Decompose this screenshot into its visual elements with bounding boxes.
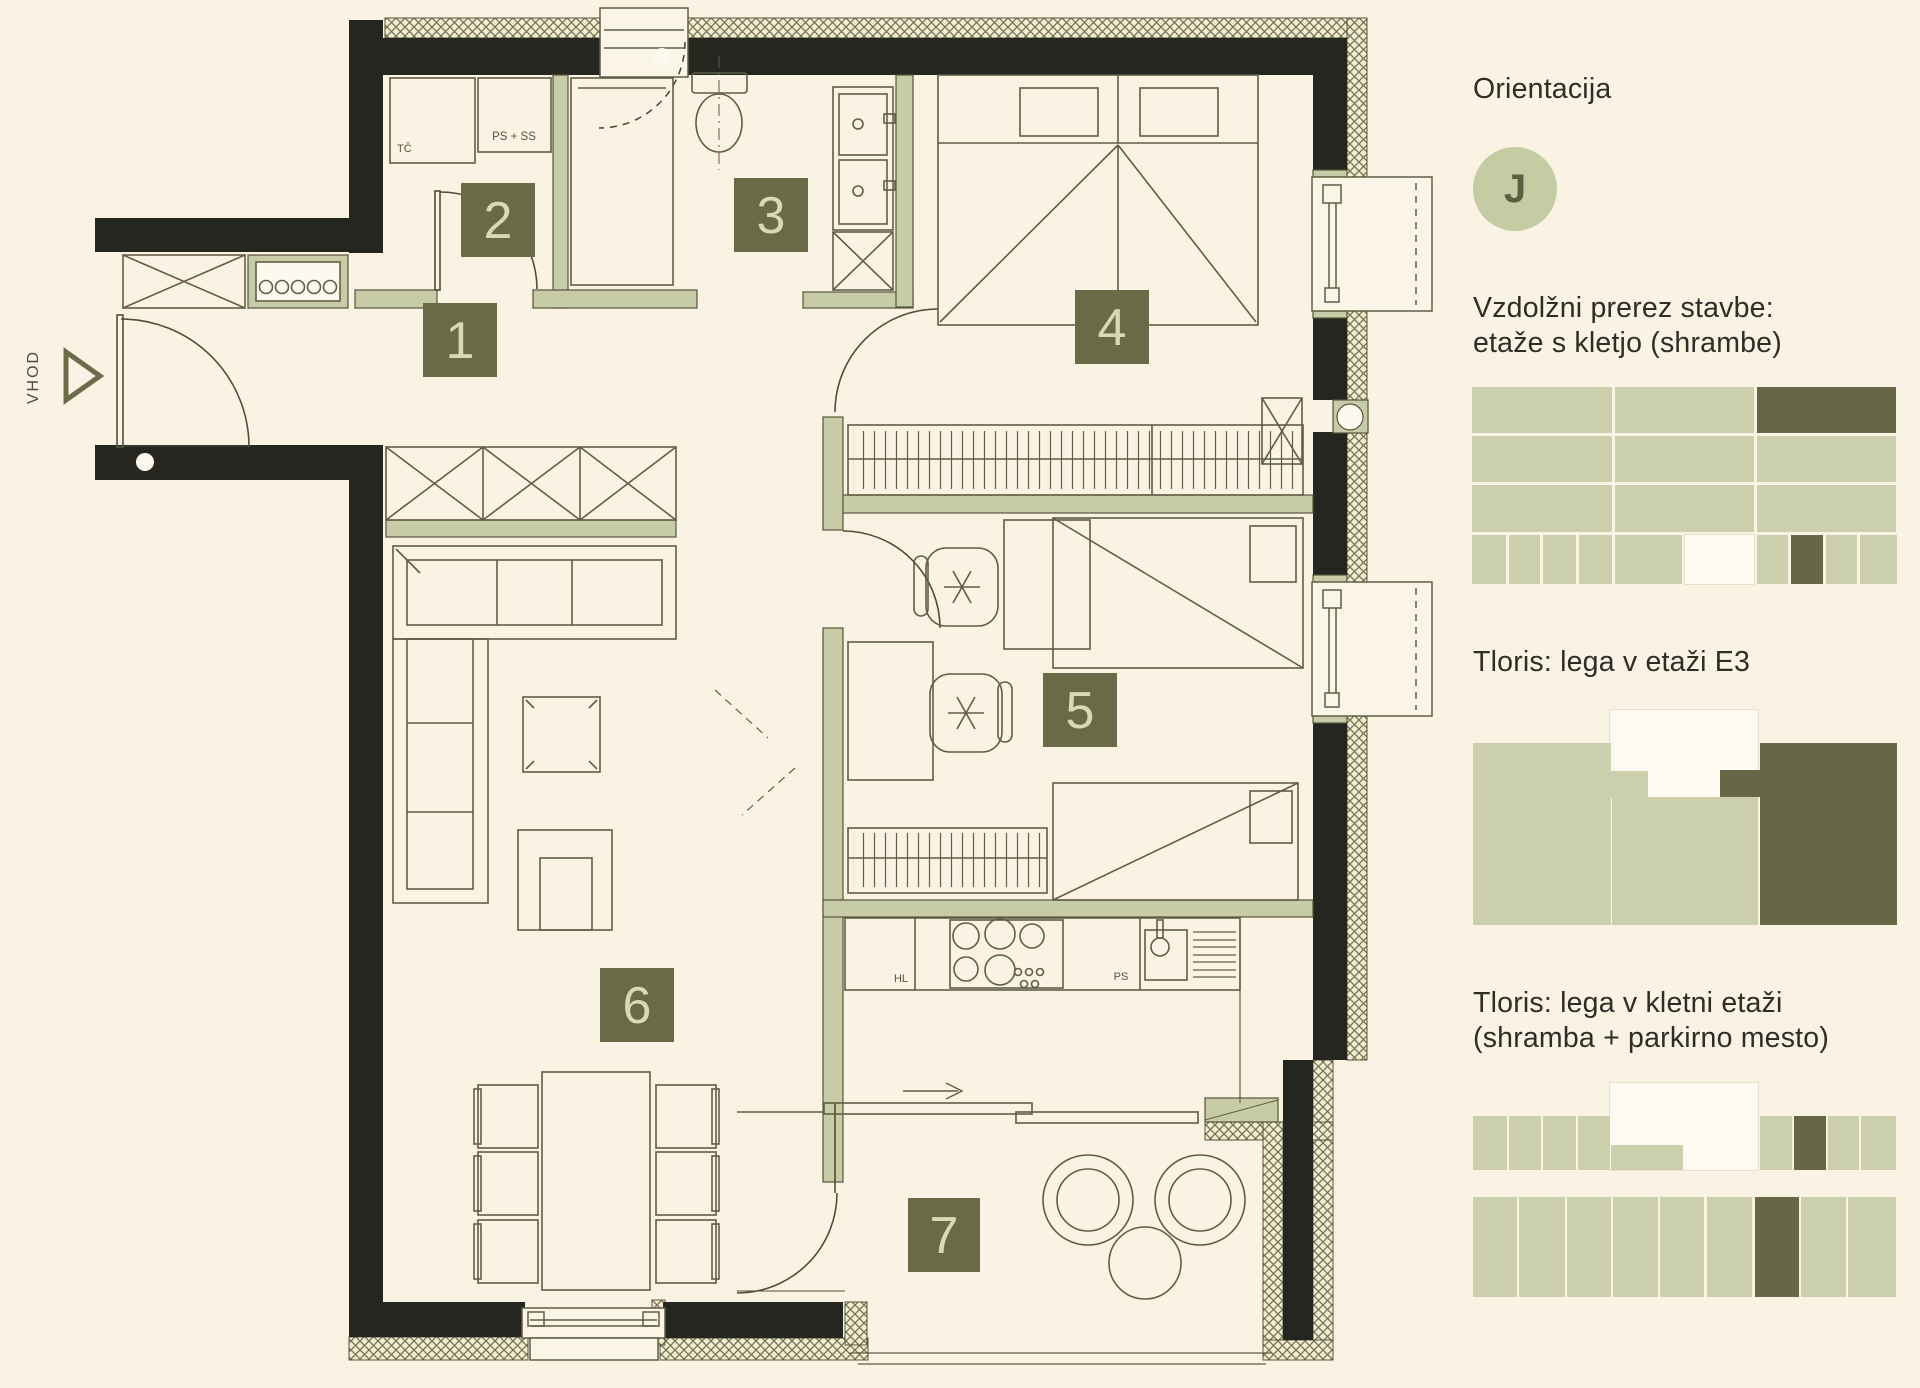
entry-door [117,315,249,447]
label-tc: TČ [397,142,412,155]
unit-cell [1578,1116,1610,1170]
wall-dot-entry [136,453,154,471]
office-chair-left [930,674,1012,752]
unit-cell [1685,535,1754,584]
unit-cell [1472,485,1612,532]
unit-cell [1757,535,1788,584]
unit-cell [1519,1197,1565,1297]
right-window-1 [1312,177,1432,311]
svg-text:5: 5 [1066,682,1095,740]
unit-cell [1760,1116,1792,1170]
section-title-basement: Tloris: lega v kletni etaži (shramba + p… [1473,986,1829,1056]
unit-cell [1543,1116,1576,1170]
svg-text:1: 1 [446,312,475,370]
unit-cell [1473,1116,1507,1170]
exterior-walls [95,20,1347,1340]
badge-room-4: 4 [1075,290,1149,364]
desk-left [848,642,933,780]
toilet [692,56,747,170]
unit-cell [1611,771,1648,797]
closet-room5 [848,828,1047,893]
unit-cell [1579,535,1612,584]
office-chair-top [914,548,998,626]
label-ps-ss: PS + SS [492,131,536,143]
projection-dashes [715,690,795,815]
svg-text:4: 4 [1098,299,1127,357]
double-bed [938,75,1258,325]
orientation-title: Orientacija [1473,72,1611,107]
unit-cell [1757,485,1896,532]
kitchen-counter [845,918,1240,1103]
bottom-window [522,1308,665,1360]
unit-cell [1473,743,1611,925]
double-sink [833,87,895,230]
unit-cell [1613,1197,1658,1297]
unit-cell [1473,1197,1517,1297]
bathroom-door [835,309,938,412]
entry-wardrobe [123,255,245,308]
unit-cell [1472,535,1506,584]
terrace-chairs [1043,1155,1245,1299]
unit-cell [1615,535,1682,584]
unit-cell [1615,387,1754,433]
unit-cell [1826,535,1857,584]
terrace-table [1109,1227,1181,1299]
coffee-table [523,697,600,772]
badge-room-2: 2 [461,183,535,257]
unit-cell [1611,1145,1683,1170]
orientation-badge: J [1473,147,1557,231]
shoe-cabinet [256,262,340,301]
badge-room-1: 1 [423,303,497,377]
desk-top [1004,520,1090,649]
badge-room-5: 5 [1043,673,1117,747]
unit-cell [1757,436,1896,482]
entrance-label: VHOD [25,350,42,404]
svg-text:2: 2 [484,192,513,250]
unit-cell [1791,535,1823,584]
orientation-letter: J [1504,167,1526,212]
unit-cell [1720,770,1760,797]
sofa [393,546,676,903]
dining-set [474,1072,719,1290]
wall-dot-top [653,48,671,66]
unit-cell [1660,1197,1704,1297]
page: { "page": { "background": "#faf3e4", "co… [0,0,1920,1388]
badge-room-6: 6 [600,968,674,1042]
unit-cell [1860,535,1897,584]
unit-cell [1757,387,1896,433]
svg-text:6: 6 [623,977,652,1035]
right-window-2 [1312,582,1432,716]
single-bed-bottom [1053,783,1298,900]
unit-cell [1861,1116,1896,1170]
unit-cell [1828,1116,1859,1170]
badge-room-3: 3 [734,178,808,252]
armchair [518,830,612,930]
svg-text:7: 7 [930,1207,959,1265]
unit-cell [1801,1197,1846,1297]
unit-cell [1615,485,1754,532]
section-title-e3: Tloris: lega v etaži E3 [1473,645,1750,680]
label-ps: PS [1114,971,1129,983]
terrace-floor-lines [850,1353,1272,1364]
unit-cell [1707,1197,1752,1297]
drying-rack [1193,932,1236,977]
unit-cell [1509,1116,1541,1170]
room-badges: 1 2 3 4 5 6 7 [423,178,1149,1272]
unit-cell [1543,535,1576,584]
furniture [123,56,1303,1364]
entrance-arrow-icon [66,352,100,400]
top-glass-panel [600,8,688,77]
label-hl: HL [894,973,908,985]
unit-cell [1567,1197,1611,1297]
diagram-basement [1473,1083,1897,1297]
closet-top [848,425,1303,495]
unit-cell [1760,743,1897,925]
stove [950,920,1063,988]
unit-cell [1472,436,1612,482]
diagram-floor-e3 [1473,710,1897,925]
hall-wardrobe [386,447,676,520]
unit-cell [1472,387,1612,433]
pipe-symbol [1337,404,1363,430]
kitchen-sink [1145,930,1187,980]
unit-cell [1848,1197,1896,1297]
badge-room-7: 7 [908,1198,980,1272]
sliding-door [737,1083,1198,1123]
shower [571,78,673,285]
svg-text:3: 3 [757,187,786,245]
unit-cell [1612,797,1758,925]
diagram-building-section [1472,383,1897,587]
section-title-longitudinal: Vzdolžni prerez stavbe: etaže s kletjo (… [1473,291,1782,361]
bath-cabinet [833,232,893,290]
unit-cell [1509,535,1540,584]
unit-cell [1794,1116,1826,1170]
unit-cell [1755,1197,1799,1297]
unit-cell [1615,436,1754,482]
